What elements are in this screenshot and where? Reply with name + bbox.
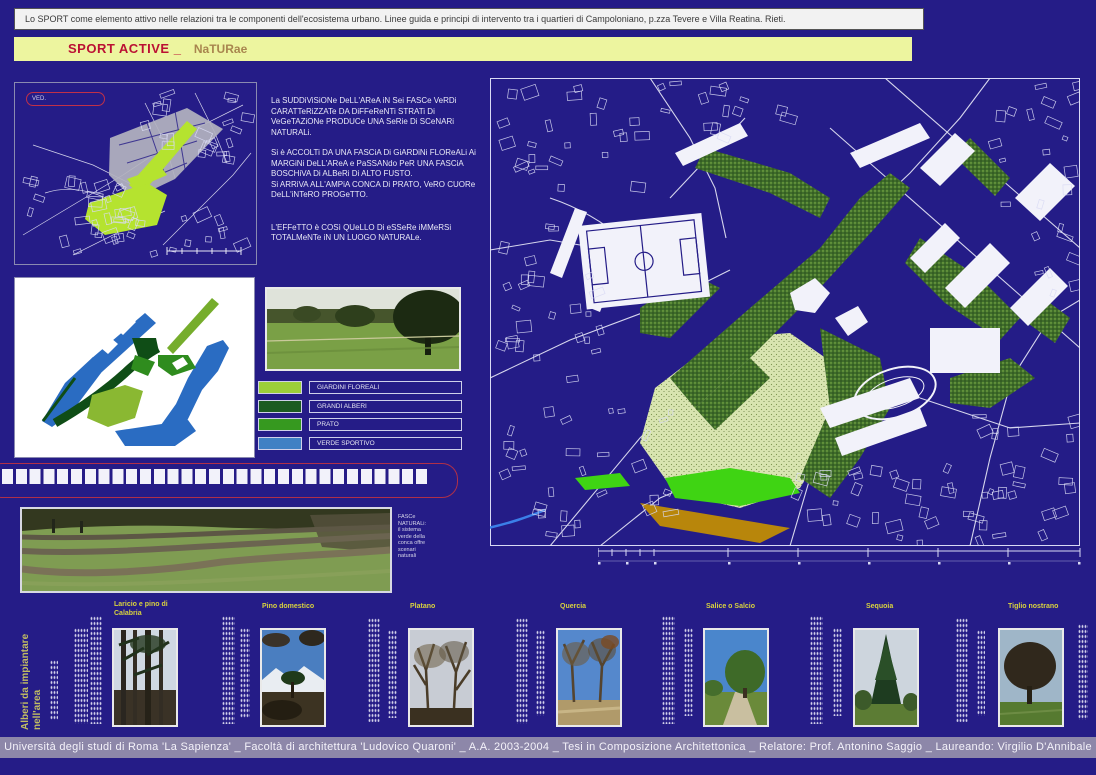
vertical-text-column [684,628,693,716]
landscape-photo-art [267,289,459,369]
tree-label-quercia: Quercia [560,602,646,611]
overview-map-tag: VED. [26,92,105,106]
fasce-note-line: naturali [398,553,464,560]
legend-swatch-prato [258,418,302,431]
scale-ruler [598,547,1084,567]
legend-label-sportivo: VERDE SPORTIVO [309,437,462,450]
trees-section-label: Alberi da impiantare nell'area [20,598,50,730]
tree-photo-sequoia [853,628,919,727]
tree-photo-laricio [112,628,178,727]
vertical-text-column [222,616,235,724]
vertical-text-column [74,628,88,724]
vertical-text-column [388,630,397,718]
tree-photo-pino [260,628,326,727]
vertical-text-column [240,628,250,718]
masterplan-sketch [14,277,255,458]
legend-label-alberi: GRANDI ALBERI [309,400,462,413]
vertical-text-column [536,630,545,716]
landscape-photo [265,287,461,371]
concept-paragraph-1: La SUDDiViSiONe DeLL'AReA iN Sei FASCe V… [271,96,479,138]
vertical-text-column [977,630,985,716]
tree-label-salice: Salice o Salcio [706,602,792,611]
soccer-field [578,213,710,310]
tree-label-laricio: Laricio e pino di Calabria [114,600,184,618]
vertical-text-column [810,616,823,724]
vertical-text-column [368,618,380,722]
tree-label-platano: Platano [410,602,496,611]
legend-label-giardini: GIARDINI FLOREALI [309,381,462,394]
tree-photo-salice [703,628,769,727]
vertical-text-column [50,660,58,720]
vertical-text-column [1078,624,1088,720]
fasce-note: FASCe NATURALi: il sistema verde della c… [398,514,464,560]
concept-paragraph-2: Si è ACCOLTi DA UNA FASCiA Di GiARDiNi F… [271,148,479,180]
legend-swatch-giardini [258,381,302,394]
footer-credits: Università degli studi di Roma 'La Sapie… [0,737,1096,758]
tree-photo-platano [408,628,474,727]
panorama-photo [20,507,392,593]
legend-label-prato: PRATO [309,418,462,431]
masterplan-sketch-art [15,278,254,457]
legend-swatch-alberi [258,400,302,413]
poster-subtitle: NaTURae [194,42,247,56]
vertical-text-column [516,618,528,724]
tree-label-sequoia: Sequoia [866,602,952,611]
concept-paragraph-3: Si ARRiVA ALL'AMPiA CONCA Di PRATO, VeRO… [271,180,479,201]
panorama-photo-art [22,509,390,591]
poster-board: Lo SPORT come elemento attivo nelle rela… [0,0,1096,775]
tree-photo-quercia [556,628,622,727]
vertical-text-column [833,628,842,716]
masterplan-cad-map [490,78,1080,546]
tree-label-tiglio: Tiglio nostrano [1008,602,1094,611]
film-band-squares [2,469,428,484]
vertical-text-column [90,616,102,724]
tree-label-pino: Pino domestico [262,602,348,611]
concept-paragraph-4: L'EFFeTTO è COSì QUeLLO Di eSSeRe iMMeRS… [271,223,479,244]
top-banner-text: Lo SPORT come elemento attivo nelle rela… [14,8,924,30]
vertical-text-column [662,616,675,724]
overview-city-map: VED. [14,82,257,265]
tree-photo-tiglio [998,628,1064,727]
title-bar: SPORT ACTIVE _ NaTURae [14,37,912,61]
overview-map-art [15,83,256,264]
vertical-text-column [956,618,968,722]
legend-swatch-sportivo [258,437,302,450]
concept-text: La SUDDiViSiONe DeLL'AReA iN Sei FASCe V… [271,96,479,254]
poster-title: SPORT ACTIVE _ [68,41,181,56]
